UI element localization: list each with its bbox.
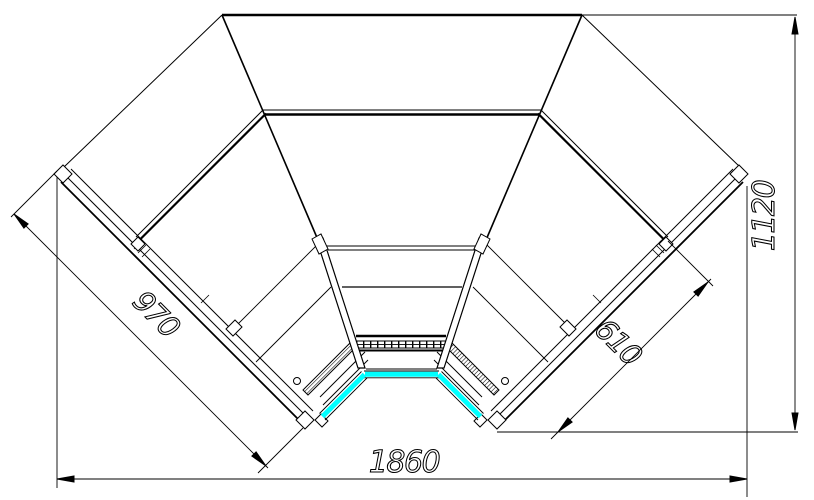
left-fastener-circle <box>294 378 301 385</box>
right-band-tab <box>560 320 576 336</box>
arrowhead <box>12 212 28 228</box>
interior-lines <box>232 240 572 405</box>
left-back-edge <box>64 15 222 167</box>
left-foot <box>296 411 314 429</box>
front-glass-left <box>323 375 365 417</box>
left-elbow-cap <box>131 237 145 251</box>
left-wing-band <box>61 169 313 422</box>
arrowhead <box>694 280 710 296</box>
dim-right-wing-depth: 610 <box>588 312 648 372</box>
canopy-right-slant-thick <box>538 114 665 241</box>
well-left-edge <box>222 15 318 240</box>
canopy-left-slant-thin <box>136 110 263 237</box>
arrowhead <box>252 452 268 468</box>
right-end-cap <box>730 165 748 183</box>
cabinet-outline <box>64 15 797 241</box>
canopy-right-slant-thin <box>541 110 668 237</box>
front-glass-highlight <box>320 369 484 420</box>
arrowhead <box>792 413 798 430</box>
dim-overall-height: 1120 <box>747 180 782 251</box>
ventilation-grille <box>356 336 446 351</box>
right-back-edge <box>582 15 740 167</box>
dim-overall-width: 1860 <box>369 445 440 480</box>
right-wing-band <box>491 169 743 422</box>
right-foot <box>488 411 506 429</box>
left-band-tick <box>201 295 209 303</box>
canopy-left-slant-thick <box>139 114 266 241</box>
right-band-tick <box>593 295 601 303</box>
right-fastener-circle <box>502 378 509 385</box>
well-right-edge <box>486 15 582 240</box>
right-corner-post <box>437 238 486 368</box>
left-corner-post <box>316 238 365 368</box>
corner-counter-plan-drawing: 970 610 1860 1120 <box>0 0 814 500</box>
front-glass-right <box>439 375 481 417</box>
arrowhead <box>730 476 747 482</box>
arrowhead <box>57 476 74 482</box>
technical-drawing-page: 970 610 1860 1120 <box>0 0 814 500</box>
arrowhead <box>792 17 798 34</box>
